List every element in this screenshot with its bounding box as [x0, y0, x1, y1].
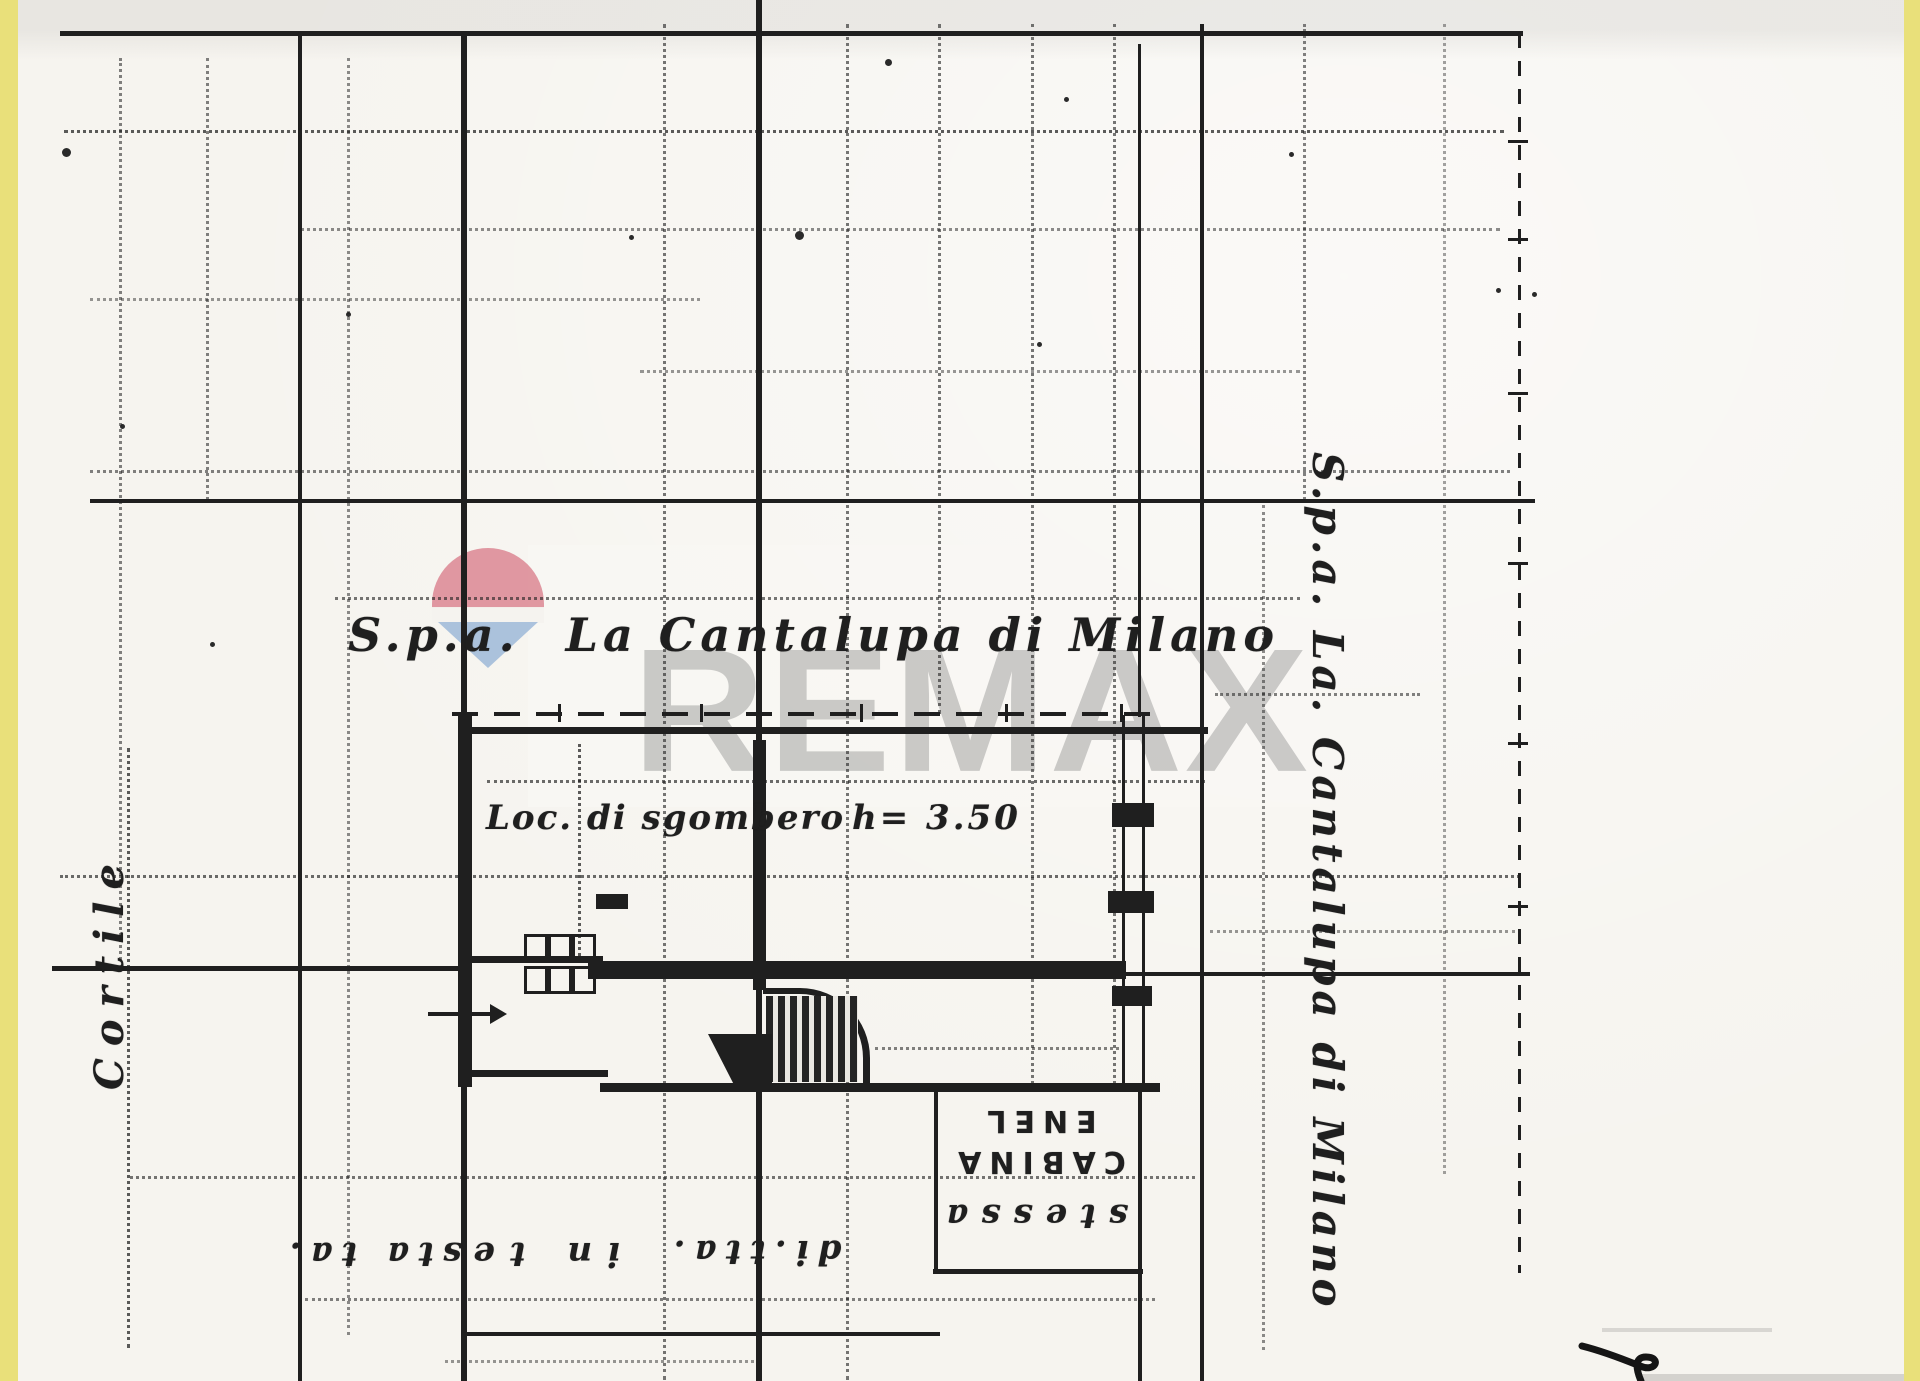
grid-dotted-h	[60, 875, 1520, 878]
boundary-tick	[1508, 562, 1528, 565]
boundary-tick	[1508, 742, 1528, 745]
grid-line-v4-lower	[1138, 1092, 1142, 1381]
boundary-tick	[1508, 905, 1528, 908]
scan-edge-right	[1904, 0, 1920, 1381]
stair-ink-wedge	[708, 1034, 772, 1084]
stair-step-box	[524, 966, 548, 994]
scanned-floor-plan: REMAX	[0, 0, 1920, 1381]
wall-bottom-left	[458, 1070, 608, 1077]
scan-edge-left	[0, 0, 18, 1381]
grid-dotted-h	[875, 1047, 1125, 1050]
grid-line-v5	[1200, 24, 1204, 1381]
grid-dotted-v	[1031, 24, 1034, 1090]
stair-step-box	[548, 934, 572, 962]
cabina-box-bottom	[933, 1269, 1143, 1274]
dash-tick	[558, 704, 561, 722]
scan-noise-dots	[62, 148, 71, 157]
stair-step-box	[524, 934, 548, 962]
boundary-tick	[1508, 238, 1528, 241]
door-mark	[596, 894, 628, 909]
scan-smudge	[1602, 1328, 1772, 1332]
enel-text: ENEL	[938, 1100, 1138, 1141]
note-ditta-upside-down: di.tta.	[658, 1232, 848, 1272]
stair-step-box	[572, 934, 596, 962]
grid-dotted-v	[347, 58, 350, 1335]
grid-dotted-h	[305, 1298, 1155, 1301]
wall-bottom	[600, 1083, 1160, 1092]
grid-dotted-h	[64, 130, 1504, 133]
grid-dotted-h	[335, 597, 1300, 600]
dash-tick	[860, 704, 863, 722]
grid-line-v2	[461, 31, 467, 1381]
grid-dotted-h	[1210, 930, 1515, 933]
boundary-tick	[1508, 140, 1528, 143]
dash-tick	[1005, 704, 1008, 722]
pillar	[1108, 891, 1154, 913]
pillar	[1112, 986, 1152, 1006]
cabina-text: CABINA	[938, 1141, 1138, 1182]
grid-dotted-v	[846, 24, 849, 1380]
pen-mark	[1578, 1336, 1708, 1381]
grid-dotted-v	[1443, 24, 1446, 1174]
stair-step-box	[572, 966, 596, 994]
courtyard-label-vertical: Cortile	[86, 852, 133, 1090]
wall-top	[458, 727, 1208, 734]
owner-label-right-vertical: S.p.a. La. Cantalupa di Milano	[1303, 452, 1352, 1312]
wall-interior-vertical	[753, 740, 766, 990]
grid-dotted-v	[663, 24, 666, 1380]
grid-line-bottom-seg	[464, 1332, 940, 1336]
wall-left	[458, 715, 472, 1087]
entrance-arrow-icon	[428, 1012, 494, 1016]
grid-dotted-v	[1113, 24, 1116, 1090]
owner-prefix-text: S.p.a.	[348, 608, 520, 662]
boundary-tick	[1508, 392, 1528, 395]
grid-dotted-v	[119, 58, 122, 960]
ceiling-height-label: h= 3.50	[852, 798, 1021, 838]
grid-line-v1	[298, 31, 302, 1381]
dash-tick	[700, 704, 703, 722]
note-inte-upside-down: in te	[468, 1234, 620, 1274]
storage-room-label: Loc. di sgombero	[486, 798, 845, 838]
grid-dotted-h	[445, 1360, 760, 1363]
note-stata-upside-down: sta ta.	[282, 1234, 462, 1274]
owner-label-line: S.p.a. La Cantalupa di Milano	[348, 608, 1279, 662]
map-boundary-dashed-right	[1518, 33, 1521, 1273]
cabina-enel-label: CABINA ENEL	[938, 1100, 1138, 1181]
grid-dotted-v	[578, 744, 581, 956]
grid-dotted-h	[90, 470, 1510, 473]
wall-interior-band	[588, 961, 1126, 979]
stair-step-box	[548, 966, 572, 994]
grid-dotted-h	[300, 228, 1500, 231]
owner-name-text: La Cantalupa di Milano	[566, 608, 1279, 662]
grid-dotted-h	[90, 298, 700, 301]
grid-line-v3	[756, 0, 762, 1381]
grid-line-top	[60, 31, 1523, 36]
stair-treads	[766, 996, 858, 1082]
note-stessa-upside-down: stessa	[946, 1196, 1128, 1236]
entrance-arrow-head	[490, 1004, 507, 1024]
grid-dotted-v	[1303, 24, 1306, 500]
grid-dotted-v	[206, 58, 209, 500]
pillar	[1112, 803, 1154, 827]
